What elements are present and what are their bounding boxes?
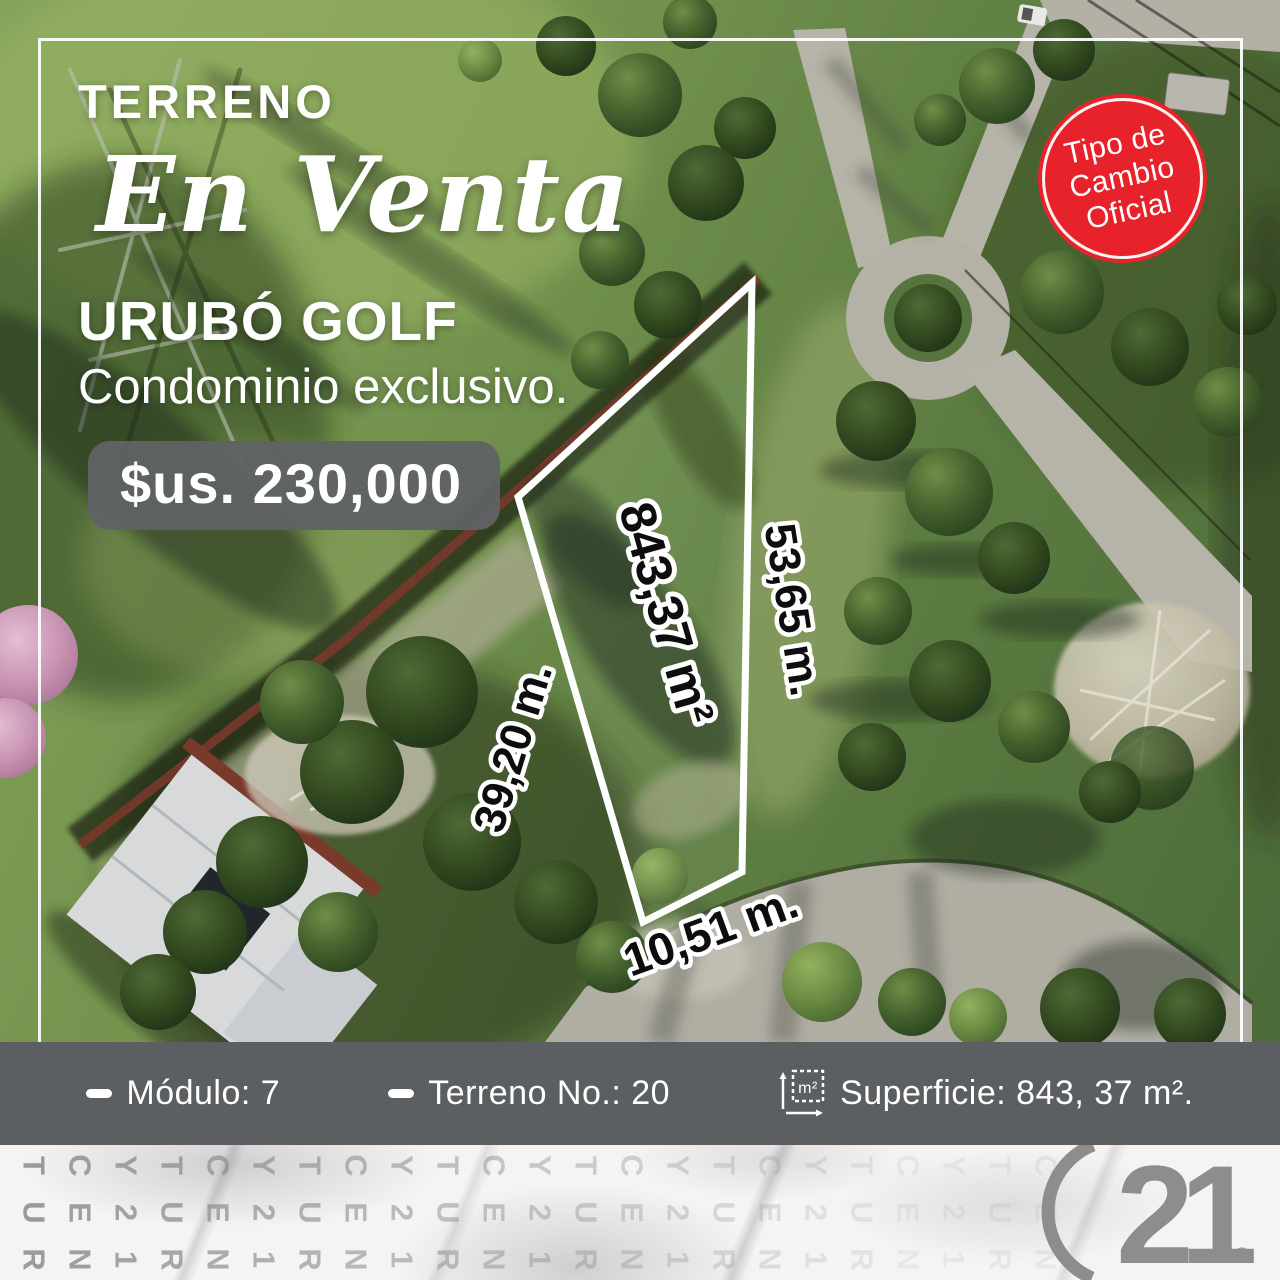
exchange-badge-text: Tipo de Cambio Oficial xyxy=(1060,117,1185,239)
watermark-letter: 2 xyxy=(932,1191,977,1235)
watermark-letter: 1 xyxy=(104,1238,149,1280)
watermark-letter: C xyxy=(472,1145,517,1188)
watermark-letter: 1 xyxy=(656,1238,701,1280)
watermark-letter: E xyxy=(886,1191,931,1235)
m2-icon-label: m² xyxy=(798,1080,818,1097)
watermark-column: TUR xyxy=(426,1145,470,1280)
watermark-letter: N xyxy=(886,1238,931,1280)
watermark-letter: N xyxy=(472,1238,517,1280)
watermark-column: CEN xyxy=(196,1145,240,1280)
watermark-column: Y21 xyxy=(518,1145,562,1280)
watermark-column: CEN xyxy=(58,1145,102,1280)
m2-area-icon: m² xyxy=(778,1069,826,1119)
plot-side-right-label: 53,65 m. xyxy=(755,520,831,699)
watermark-letter: Y xyxy=(932,1145,977,1188)
watermark-letter: T xyxy=(12,1145,57,1188)
watermark-letter: U xyxy=(702,1191,747,1235)
watermark-letter: 2 xyxy=(242,1191,287,1235)
watermark-letter: Y xyxy=(242,1145,287,1188)
watermark-letter: T xyxy=(426,1145,471,1188)
dash-bullet-icon xyxy=(388,1089,414,1098)
watermark-letter: Y xyxy=(656,1145,701,1188)
watermark-letter: C xyxy=(748,1145,793,1188)
watermark-letter: 2 xyxy=(656,1191,701,1235)
dash-bullet-icon xyxy=(86,1089,112,1098)
price-badge: $us. 230,000 xyxy=(88,441,500,530)
exchange-badge-line1: Tipo de xyxy=(1060,117,1171,173)
subtitle: Condominio exclusivo. xyxy=(78,359,631,415)
watermark-letter: N xyxy=(610,1238,655,1280)
watermark-column: CEN xyxy=(886,1145,930,1280)
century21-logo: 21 ® xyxy=(1030,1145,1280,1280)
watermark-letter: U xyxy=(426,1191,471,1235)
exchange-badge-line3: Oficial xyxy=(1074,184,1185,240)
watermark-column: CEN xyxy=(334,1145,378,1280)
watermark-letter: R xyxy=(840,1238,885,1280)
watermark-letter: T xyxy=(840,1145,885,1188)
watermark-letter: E xyxy=(58,1191,103,1235)
watermark-letter: R xyxy=(426,1238,471,1280)
land-sale-poster: 843,37 m² 53,65 m. 39,20 m. 10,51 m. TER… xyxy=(0,0,1280,1280)
superficie-item: m² Superficie: 843, 37 m². xyxy=(778,1069,1194,1119)
watermark-letter: T xyxy=(288,1145,333,1188)
terreno-text: Terreno No.: 20 xyxy=(428,1074,670,1113)
watermark-letter: U xyxy=(288,1191,333,1235)
header-block: TERRENO En Venta URUBÓ GOLF Condominio e… xyxy=(78,74,631,530)
watermark-letter: R xyxy=(978,1238,1023,1280)
watermark-letter: E xyxy=(334,1191,379,1235)
watermark-column: Y21 xyxy=(794,1145,838,1280)
watermark-column: Y21 xyxy=(242,1145,286,1280)
watermark-column: TUR xyxy=(12,1145,56,1280)
plot-side-left-label: 39,20 m. xyxy=(464,658,562,838)
watermark-letter: N xyxy=(58,1238,103,1280)
watermark-letter: Y xyxy=(104,1145,149,1188)
watermark-letter: N xyxy=(334,1238,379,1280)
watermark-letter: T xyxy=(978,1145,1023,1188)
watermark-letter: C xyxy=(196,1145,241,1188)
watermark-letter: 2 xyxy=(104,1191,149,1235)
watermark-letter: R xyxy=(702,1238,747,1280)
info-bar: Módulo: 7 Terreno No.: 20 m² Superficie:… xyxy=(0,1042,1280,1145)
modulo-text: Módulo: 7 xyxy=(126,1074,280,1113)
exchange-badge-line2: Cambio xyxy=(1067,151,1178,207)
watermark-letter: R xyxy=(564,1238,609,1280)
watermark-letter: 1 xyxy=(380,1238,425,1280)
watermark-column: TUR xyxy=(978,1145,1022,1280)
watermark-letter: 1 xyxy=(518,1238,563,1280)
kicker-title: TERRENO xyxy=(78,74,631,129)
watermark-letter: Y xyxy=(380,1145,425,1188)
price-value: $us. 230,000 xyxy=(120,452,462,515)
watermark-letter: 2 xyxy=(794,1191,839,1235)
watermark-letter: C xyxy=(58,1145,103,1188)
script-title: En Venta xyxy=(96,143,631,247)
location-title: URUBÓ GOLF xyxy=(78,289,631,353)
watermark-letter: U xyxy=(840,1191,885,1235)
watermark-letter: 1 xyxy=(242,1238,287,1280)
watermark-column: TUR xyxy=(564,1145,608,1280)
watermark-letter: E xyxy=(748,1191,793,1235)
watermark-letter: E xyxy=(196,1191,241,1235)
watermark-letter: 2 xyxy=(380,1191,425,1235)
exchange-badge: Tipo de Cambio Oficial xyxy=(1038,94,1207,263)
watermark-letter: N xyxy=(748,1238,793,1280)
watermark-column: Y21 xyxy=(932,1145,976,1280)
watermark-letter: Y xyxy=(794,1145,839,1188)
watermark-letter: U xyxy=(978,1191,1023,1235)
watermark-column: CEN xyxy=(748,1145,792,1280)
watermark-column: CEN xyxy=(472,1145,516,1280)
watermark-letter: E xyxy=(472,1191,517,1235)
watermark-letter: C xyxy=(886,1145,931,1188)
watermark-letter: U xyxy=(12,1191,57,1235)
watermark-letter: T xyxy=(564,1145,609,1188)
watermark-letter: T xyxy=(702,1145,747,1188)
watermark-column: TUR xyxy=(150,1145,194,1280)
watermark-column: Y21 xyxy=(656,1145,700,1280)
watermark-letter: C xyxy=(610,1145,655,1188)
watermark-letter: R xyxy=(12,1238,57,1280)
watermark-letter: T xyxy=(150,1145,195,1188)
watermark-letter: U xyxy=(150,1191,195,1235)
watermark-letter: Y xyxy=(518,1145,563,1188)
watermark-column: Y21 xyxy=(104,1145,148,1280)
watermark-letter: 2 xyxy=(518,1191,563,1235)
watermark-letter: N xyxy=(196,1238,241,1280)
watermark-letter: C xyxy=(334,1145,379,1188)
c21-arc xyxy=(1048,1145,1093,1278)
watermark-letter: U xyxy=(564,1191,609,1235)
registered-mark: ® xyxy=(1234,1243,1250,1268)
watermark-letter: R xyxy=(288,1238,333,1280)
modulo-item: Módulo: 7 xyxy=(86,1074,280,1113)
watermark-letter: 1 xyxy=(932,1238,977,1280)
watermark-letter: E xyxy=(610,1191,655,1235)
watermark-letter: 1 xyxy=(794,1238,839,1280)
watermark-column: Y21 xyxy=(380,1145,424,1280)
brand-footer: TURCENY21TURCENY21TURCENY21TURCENY21TURC… xyxy=(0,1145,1280,1280)
superficie-text: Superficie: 843, 37 m². xyxy=(840,1074,1194,1113)
watermark-letter: R xyxy=(150,1238,195,1280)
watermark-column: TUR xyxy=(702,1145,746,1280)
terreno-item: Terreno No.: 20 xyxy=(388,1074,670,1113)
watermark-column: CEN xyxy=(610,1145,654,1280)
watermark-column: TUR xyxy=(840,1145,884,1280)
watermark-column: TUR xyxy=(288,1145,332,1280)
